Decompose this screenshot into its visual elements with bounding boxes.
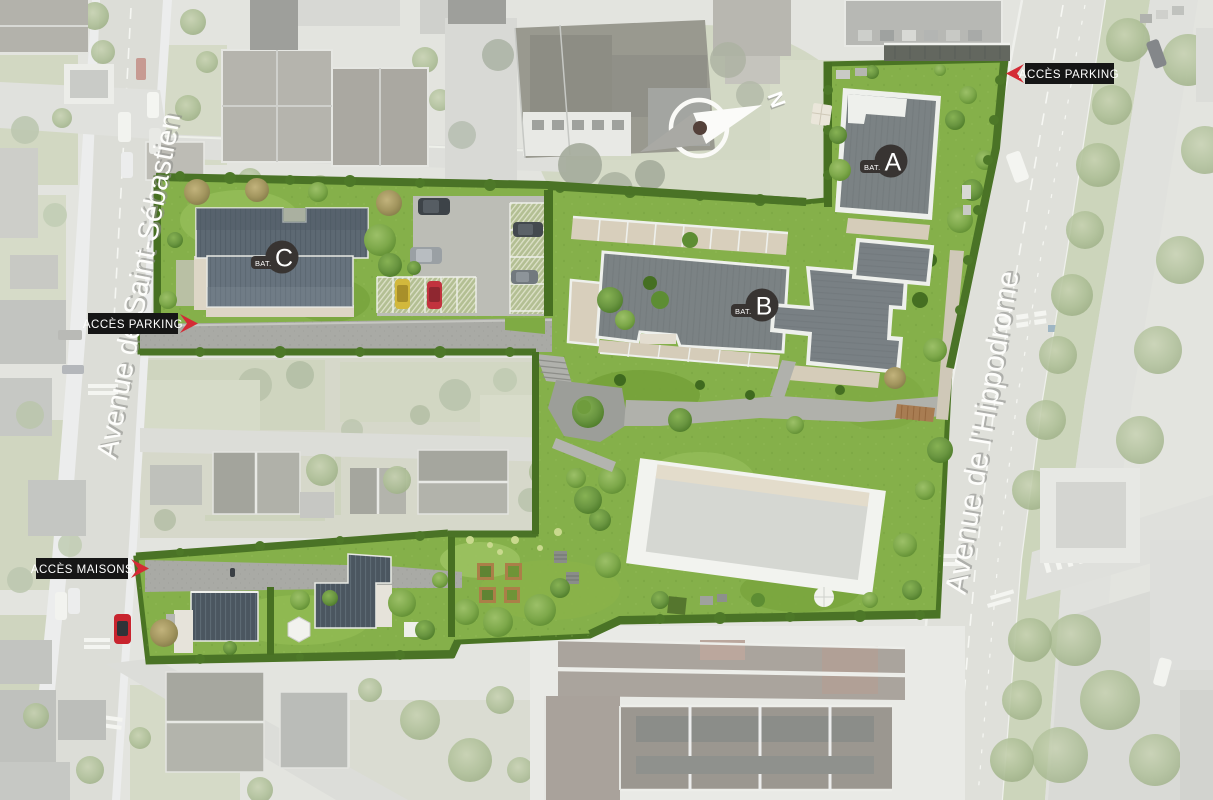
svg-text:C: C xyxy=(275,245,293,273)
svg-text:BAT.: BAT. xyxy=(255,259,271,268)
svg-text:B: B xyxy=(756,293,773,321)
svg-text:ACCÈS PARKING: ACCÈS PARKING xyxy=(1019,68,1119,81)
svg-text:ACCÈS MAISONS: ACCÈS MAISONS xyxy=(31,563,133,576)
svg-text:A: A xyxy=(885,149,902,177)
svg-text:BAT.: BAT. xyxy=(864,163,880,172)
svg-text:ACCÈS PARKING: ACCÈS PARKING xyxy=(83,318,183,331)
svg-text:BAT.: BAT. xyxy=(735,307,751,316)
